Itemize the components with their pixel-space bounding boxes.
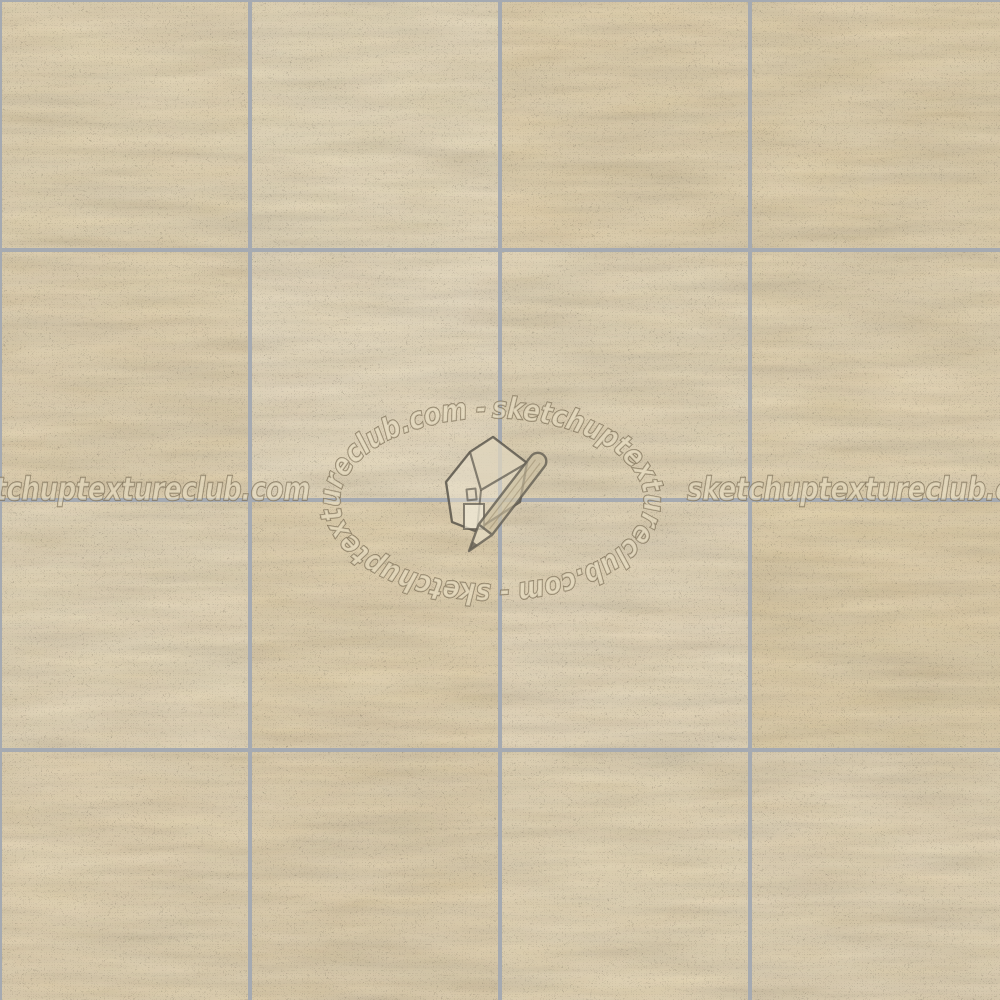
travertine-texture-image: sketchuptextureclub.com sketchuptexturec…: [0, 0, 1000, 1000]
grout-line: [0, 248, 1000, 252]
texture-canvas: sketchuptextureclub.com sketchuptexturec…: [0, 0, 1000, 1000]
grout-line: [0, 748, 1000, 752]
watermark-text-left: sketchuptextureclub.com: [0, 470, 310, 508]
grout-line: [0, 0, 1000, 2]
watermark-text-right: sketchuptextureclub.com: [687, 470, 1000, 508]
